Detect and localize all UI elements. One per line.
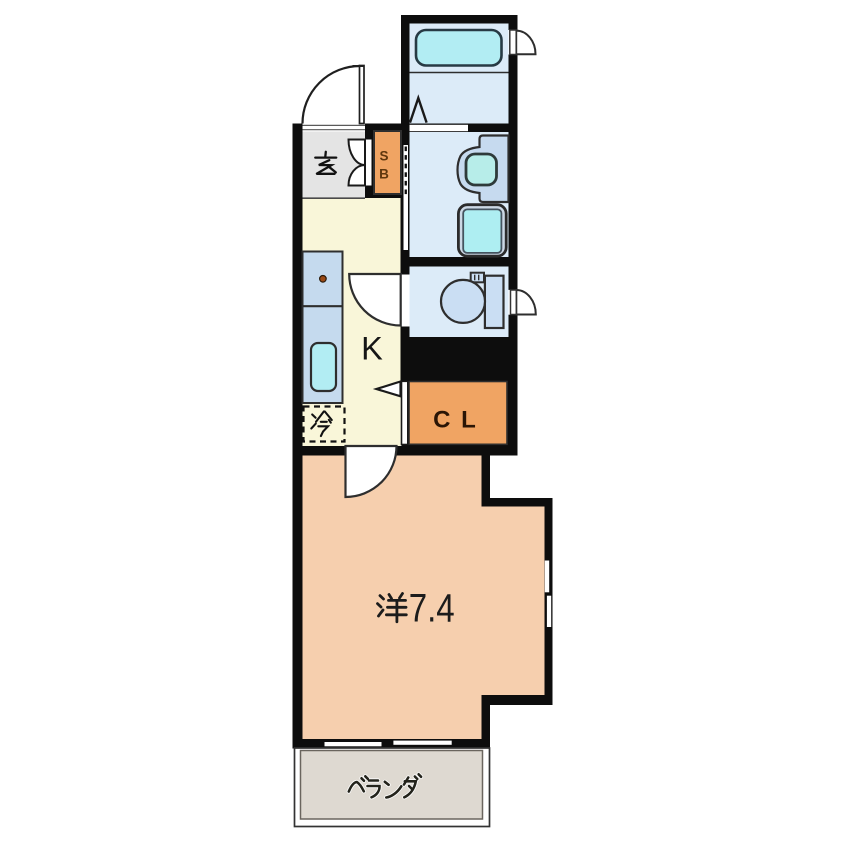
- svg-text:S: S: [379, 148, 388, 163]
- svg-text:K: K: [361, 331, 383, 367]
- svg-text:B: B: [379, 166, 389, 181]
- svg-text:7.4: 7.4: [409, 587, 455, 631]
- svg-text:C L: C L: [433, 407, 478, 434]
